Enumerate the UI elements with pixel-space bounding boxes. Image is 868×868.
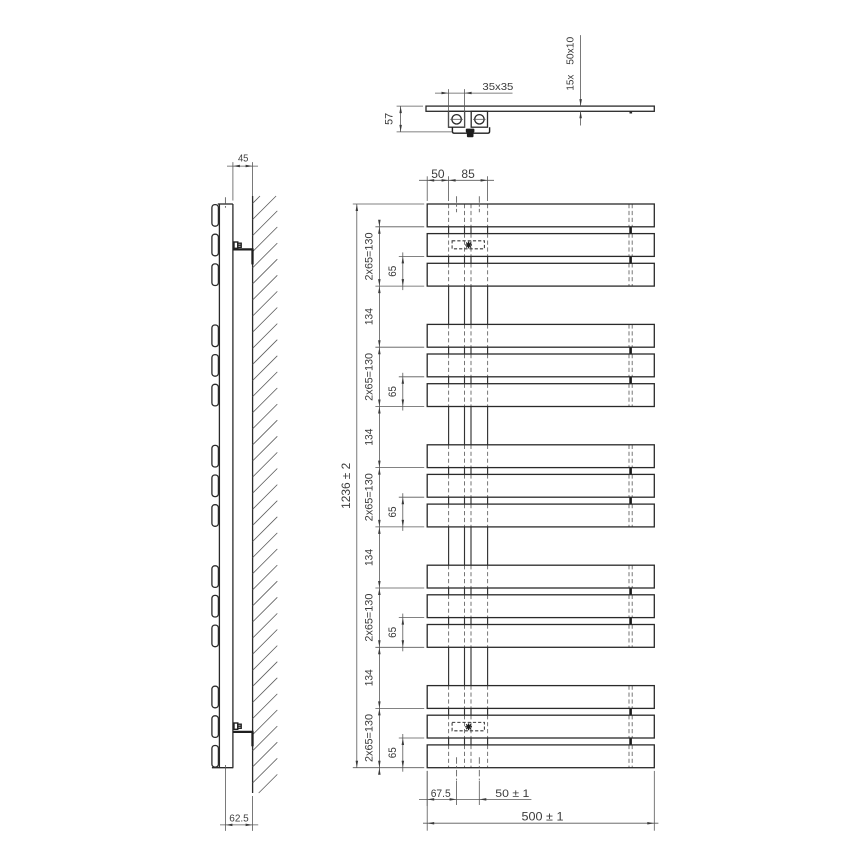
svg-text:50: 50 — [431, 167, 445, 181]
svg-text:2x65=130: 2x65=130 — [363, 473, 375, 521]
svg-text:57: 57 — [384, 113, 396, 125]
svg-text:85: 85 — [461, 167, 475, 181]
svg-text:65: 65 — [387, 507, 399, 518]
svg-text:134: 134 — [363, 429, 375, 446]
svg-text:65: 65 — [387, 627, 399, 638]
svg-text:2x65=130: 2x65=130 — [363, 594, 375, 642]
svg-text:15x: 15x — [564, 74, 576, 91]
svg-text:2x65=130: 2x65=130 — [363, 353, 375, 401]
svg-text:65: 65 — [387, 386, 399, 397]
svg-text:134: 134 — [363, 669, 375, 686]
svg-text:2x65=130: 2x65=130 — [363, 233, 375, 281]
svg-text:45: 45 — [238, 153, 249, 165]
svg-text:134: 134 — [363, 549, 375, 566]
svg-text:50 ± 1: 50 ± 1 — [495, 788, 529, 800]
svg-text:134: 134 — [363, 308, 375, 325]
svg-text:1236 ± 2: 1236 ± 2 — [341, 463, 353, 509]
svg-text:67.5: 67.5 — [431, 788, 451, 800]
svg-text:50x10: 50x10 — [564, 37, 576, 65]
svg-text:2x65=130: 2x65=130 — [363, 714, 375, 762]
svg-text:65: 65 — [387, 747, 399, 758]
svg-text:62.5: 62.5 — [229, 812, 249, 824]
svg-text:65: 65 — [387, 266, 399, 277]
svg-text:35x35: 35x35 — [482, 81, 513, 93]
svg-text:500 ± 1: 500 ± 1 — [522, 811, 564, 823]
